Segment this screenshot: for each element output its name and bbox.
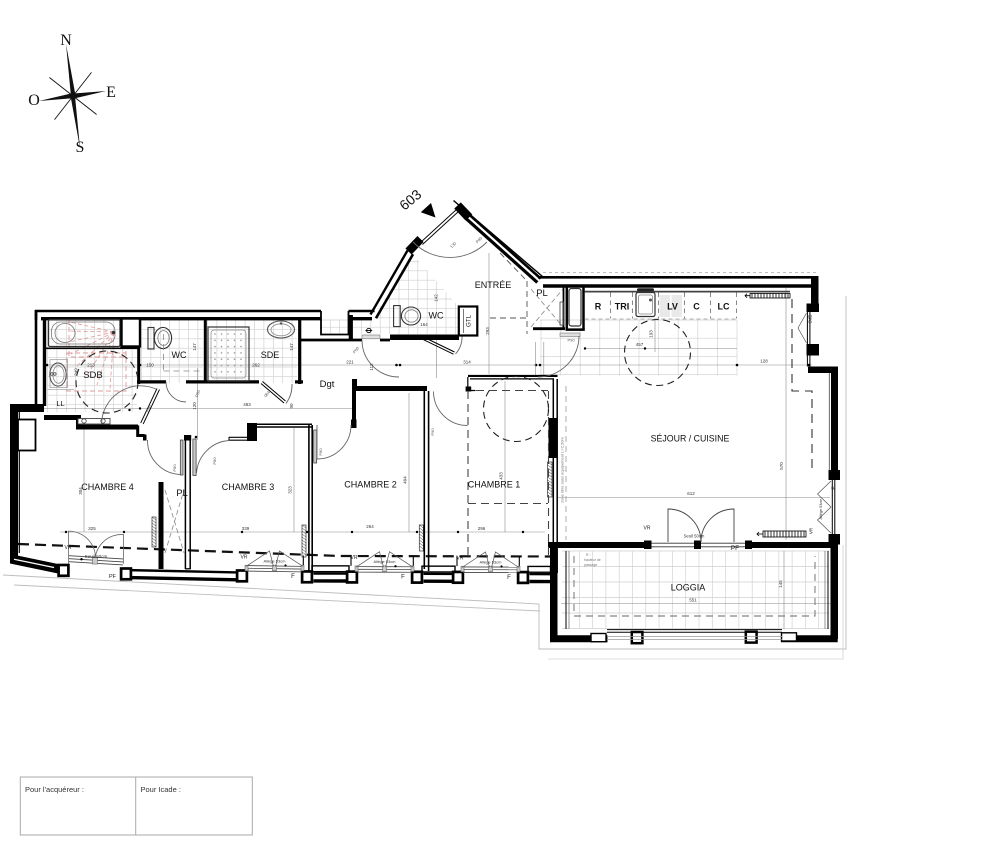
- svg-text:551: 551: [689, 598, 697, 603]
- svg-text:145: 145: [778, 580, 783, 588]
- svg-text:P80: P80: [318, 448, 323, 456]
- svg-text:262: 262: [252, 363, 260, 368]
- svg-text:zone libre sans équipement L=2: zone libre sans équipement L=2,50m: [560, 436, 565, 502]
- svg-text:VR: VR: [457, 555, 464, 561]
- svg-text:P60: P60: [352, 345, 361, 354]
- svg-text:SDB: SDB: [83, 370, 103, 381]
- svg-text:PL: PL: [176, 488, 188, 499]
- svg-text:221: 221: [346, 360, 354, 365]
- svg-text:Allège 53cm: Allège 53cm: [479, 559, 502, 564]
- svg-text:WC: WC: [429, 311, 444, 321]
- svg-text:P90: P90: [567, 338, 575, 343]
- svg-text:213: 213: [87, 363, 95, 368]
- svg-text:164: 164: [420, 322, 428, 327]
- svg-text:Pour l'acquéreur :: Pour l'acquéreur :: [25, 785, 84, 794]
- svg-text:LOGGIA: LOGGIA: [671, 583, 706, 593]
- svg-text:147: 147: [289, 343, 294, 351]
- svg-text:C: C: [693, 302, 700, 312]
- svg-text:249: 249: [74, 368, 79, 376]
- svg-text:WC: WC: [172, 350, 187, 360]
- svg-text:Allège 53cm: Allège 53cm: [373, 559, 396, 564]
- svg-text:433: 433: [499, 472, 504, 480]
- svg-text:Pour Icade :: Pour Icade :: [141, 785, 181, 794]
- svg-text:CHAMBRE 3: CHAMBRE 3: [222, 482, 275, 492]
- svg-text:F: F: [291, 574, 295, 580]
- svg-text:CHAMBRE 4: CHAMBRE 4: [81, 482, 134, 492]
- svg-text:N: N: [60, 32, 72, 49]
- svg-text:120: 120: [192, 402, 197, 410]
- svg-text:Allège 53cm: Allège 53cm: [263, 558, 286, 563]
- svg-text:603: 603: [396, 186, 424, 213]
- svg-text:142: 142: [434, 294, 439, 302]
- svg-text:LL: LL: [56, 399, 64, 408]
- svg-text:LV: LV: [667, 302, 678, 312]
- svg-text:F: F: [507, 575, 511, 581]
- svg-text:GTL: GTL: [466, 314, 473, 327]
- svg-text:147: 147: [192, 343, 197, 351]
- svg-text:P90: P90: [475, 235, 484, 244]
- svg-text:304: 304: [78, 487, 83, 495]
- svg-text:264: 264: [366, 524, 374, 529]
- svg-text:hauteur de: hauteur de: [584, 558, 601, 562]
- svg-text:483: 483: [243, 402, 251, 407]
- svg-text:SDE: SDE: [261, 350, 280, 360]
- svg-text:Allège 53cm: Allège 53cm: [819, 499, 823, 520]
- svg-text:325: 325: [88, 526, 96, 531]
- svg-text:P80: P80: [212, 457, 217, 465]
- svg-text:VR: VR: [241, 554, 248, 560]
- svg-text:VR: VR: [644, 526, 651, 532]
- svg-text:193: 193: [649, 330, 654, 338]
- svg-text:VR: VR: [809, 527, 814, 534]
- svg-text:P80: P80: [145, 403, 153, 412]
- svg-text:SÉJOUR / CUISINE: SÉJOUR / CUISINE: [651, 434, 730, 444]
- svg-text:570: 570: [779, 462, 784, 470]
- svg-text:Dgt: Dgt: [320, 379, 335, 390]
- svg-text:112: 112: [369, 363, 374, 371]
- svg-text:R :: R :: [586, 553, 591, 557]
- svg-text:323: 323: [288, 486, 293, 494]
- svg-text:VR: VR: [351, 555, 358, 561]
- svg-text:CHAMBRE 1: CHAMBRE 1: [468, 480, 521, 490]
- svg-text:S: S: [76, 139, 85, 156]
- svg-text:PF: PF: [109, 574, 117, 580]
- svg-text:TRI: TRI: [615, 302, 630, 312]
- svg-text:VR: VR: [65, 545, 72, 551]
- svg-text:passage: passage: [584, 563, 597, 567]
- svg-text:P90: P90: [430, 428, 435, 436]
- svg-text:OdB: OdB: [808, 314, 813, 323]
- svg-text:ENTRÉE: ENTRÉE: [475, 280, 512, 290]
- svg-text:F: F: [401, 575, 405, 581]
- svg-text:R: R: [595, 302, 602, 312]
- svg-text:150: 150: [146, 363, 154, 368]
- svg-text:612: 612: [687, 491, 695, 496]
- svg-text:P80: P80: [172, 464, 177, 472]
- svg-text:90: 90: [289, 403, 294, 409]
- svg-text:457: 457: [636, 342, 644, 347]
- svg-text:Seuil 50cm: Seuil 50cm: [684, 534, 705, 539]
- svg-text:P80: P80: [194, 389, 201, 398]
- svg-text:LC: LC: [718, 302, 730, 312]
- svg-text:339: 339: [242, 526, 250, 531]
- svg-text:296: 296: [478, 526, 486, 531]
- svg-text:314: 314: [463, 360, 471, 365]
- svg-text:O: O: [28, 92, 40, 109]
- svg-text:PL: PL: [536, 288, 548, 299]
- svg-text:E: E: [106, 84, 116, 101]
- svg-text:404: 404: [403, 476, 408, 484]
- svg-text:130: 130: [449, 240, 458, 249]
- svg-text:CHAMBRE 2: CHAMBRE 2: [344, 480, 397, 490]
- svg-text:Seuil 50cm: Seuil 50cm: [85, 554, 108, 559]
- svg-text:128: 128: [760, 359, 768, 364]
- svg-text:PF: PF: [731, 545, 739, 552]
- svg-text:293: 293: [485, 327, 490, 335]
